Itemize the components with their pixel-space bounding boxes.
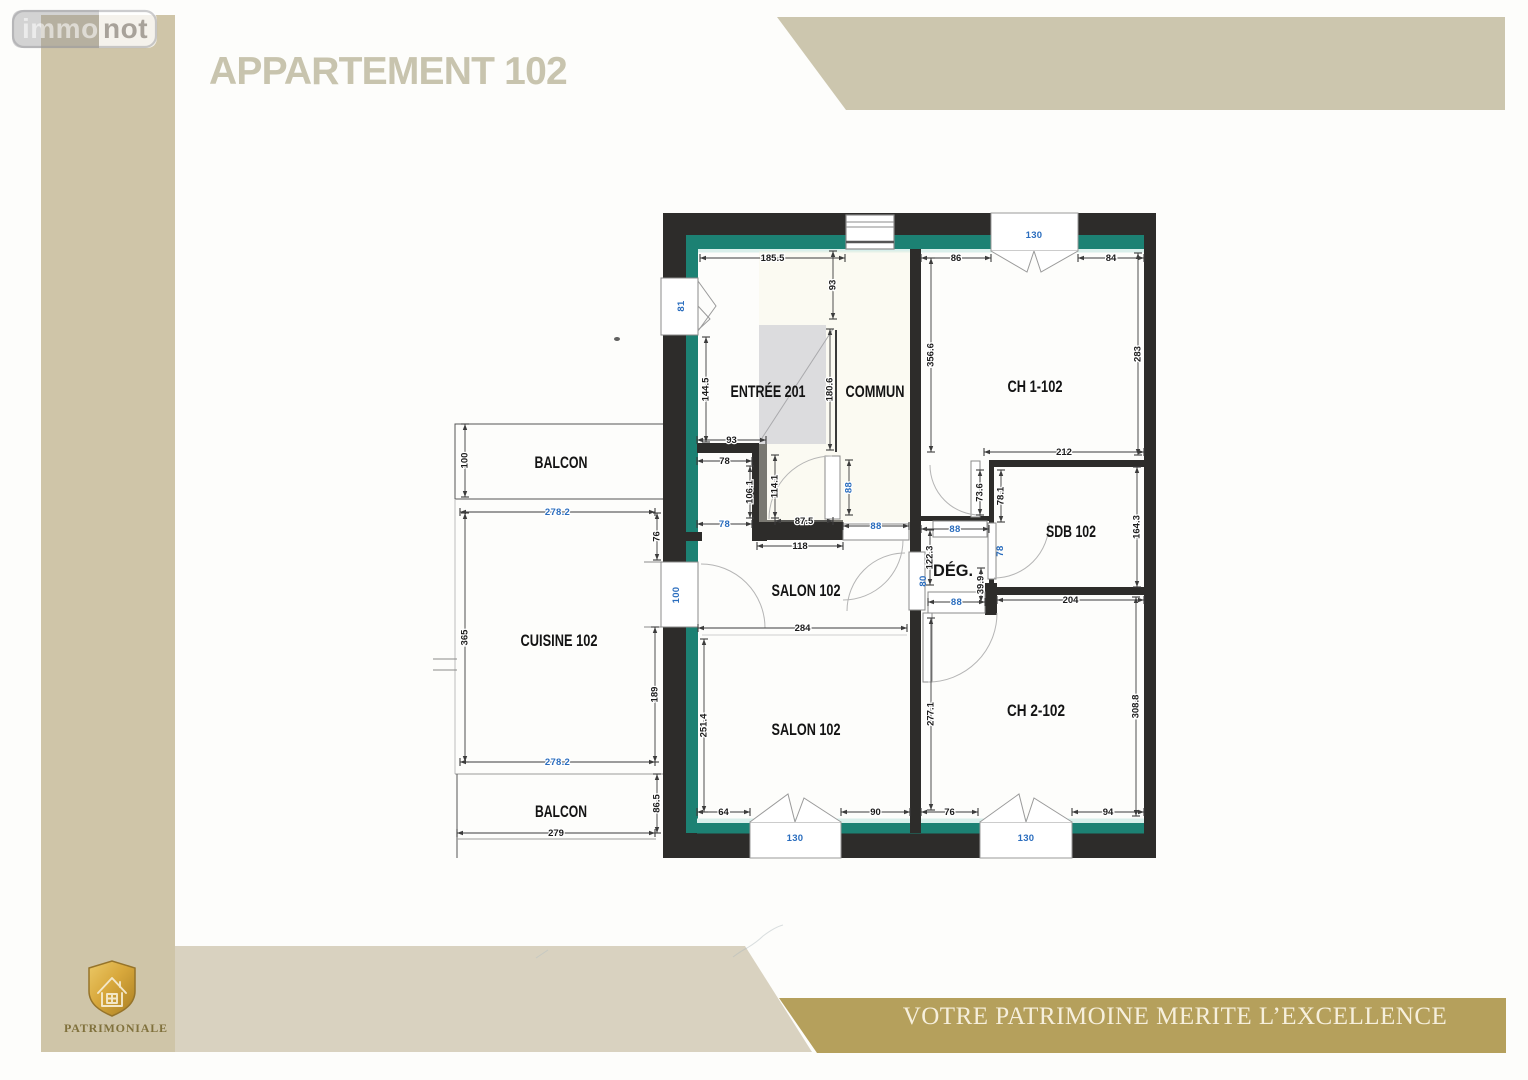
- svg-text:76: 76: [652, 531, 663, 542]
- svg-text:81: 81: [676, 300, 687, 312]
- svg-text:ENTRÉE 201: ENTRÉE 201: [731, 382, 806, 401]
- svg-text:CH 1-102: CH 1-102: [1008, 377, 1063, 396]
- svg-text:88: 88: [870, 521, 881, 532]
- svg-text:90: 90: [870, 807, 881, 818]
- svg-text:277.1: 277.1: [926, 701, 937, 725]
- svg-text:88: 88: [951, 597, 962, 608]
- svg-text:365: 365: [460, 629, 471, 646]
- svg-text:114.1: 114.1: [770, 474, 781, 498]
- svg-text:64: 64: [718, 807, 729, 818]
- svg-text:308.8: 308.8: [1131, 695, 1142, 719]
- svg-text:86: 86: [951, 253, 962, 264]
- svg-text:73.6: 73.6: [975, 483, 986, 502]
- svg-text:204: 204: [1063, 595, 1080, 606]
- svg-text:39.9: 39.9: [976, 576, 987, 595]
- svg-text:122.3: 122.3: [925, 546, 936, 570]
- svg-text:189: 189: [650, 687, 661, 703]
- svg-text:130: 130: [1018, 833, 1035, 844]
- svg-text:BALCON: BALCON: [535, 453, 588, 472]
- svg-text:87.5: 87.5: [795, 516, 814, 527]
- svg-text:251.4: 251.4: [699, 713, 710, 737]
- svg-text:100: 100: [671, 587, 682, 604]
- svg-text:278.2: 278.2: [545, 507, 570, 518]
- svg-text:BALCON: BALCON: [535, 802, 587, 821]
- svg-text:SALON 102: SALON 102: [772, 720, 841, 739]
- svg-text:100: 100: [460, 453, 471, 469]
- svg-text:SDB 102: SDB 102: [1046, 522, 1096, 541]
- svg-text:78.1: 78.1: [996, 486, 1007, 505]
- svg-text:CH 2-102: CH 2-102: [1007, 701, 1065, 720]
- svg-text:212: 212: [1056, 447, 1072, 458]
- svg-text:278.2: 278.2: [545, 757, 570, 768]
- svg-text:94: 94: [1103, 807, 1114, 818]
- svg-text:118: 118: [792, 541, 807, 552]
- svg-text:78: 78: [719, 519, 730, 530]
- svg-text:144.5: 144.5: [701, 377, 712, 401]
- svg-text:immo: immo: [22, 13, 99, 44]
- svg-text:93: 93: [726, 435, 737, 446]
- svg-text:164.3: 164.3: [1132, 515, 1143, 539]
- svg-text:356.6: 356.6: [926, 343, 937, 367]
- svg-text:DÉG.: DÉG.: [933, 561, 973, 580]
- svg-text:180.6: 180.6: [825, 378, 836, 402]
- svg-text:PATRIMONIALE: PATRIMONIALE: [64, 1021, 168, 1035]
- svg-text:78: 78: [719, 456, 730, 467]
- svg-text:76: 76: [944, 807, 955, 818]
- svg-text:130: 130: [787, 833, 804, 844]
- svg-text:SALON 102: SALON 102: [772, 581, 841, 600]
- svg-text:284: 284: [795, 623, 812, 634]
- svg-text:130: 130: [1026, 230, 1043, 241]
- svg-text:APPARTEMENT 102: APPARTEMENT 102: [209, 50, 567, 93]
- svg-text:279: 279: [548, 828, 564, 839]
- svg-text:CUISINE 102: CUISINE 102: [521, 631, 598, 650]
- svg-text:283: 283: [1133, 346, 1144, 362]
- svg-text:78: 78: [995, 545, 1006, 556]
- svg-text:106.1: 106.1: [745, 479, 756, 503]
- svg-text:88: 88: [949, 524, 960, 535]
- svg-text:VOTRE PATRIMOINE MERITE L’EXCE: VOTRE PATRIMOINE MERITE L’EXCELLENCE: [903, 1003, 1448, 1030]
- svg-text:93: 93: [828, 280, 839, 291]
- svg-text:not: not: [103, 13, 148, 44]
- svg-text:86.5: 86.5: [652, 794, 663, 813]
- svg-text:84: 84: [1106, 253, 1117, 264]
- svg-text:COMMUN: COMMUN: [846, 382, 905, 401]
- svg-text:88: 88: [844, 482, 855, 493]
- svg-text:185.5: 185.5: [761, 253, 785, 264]
